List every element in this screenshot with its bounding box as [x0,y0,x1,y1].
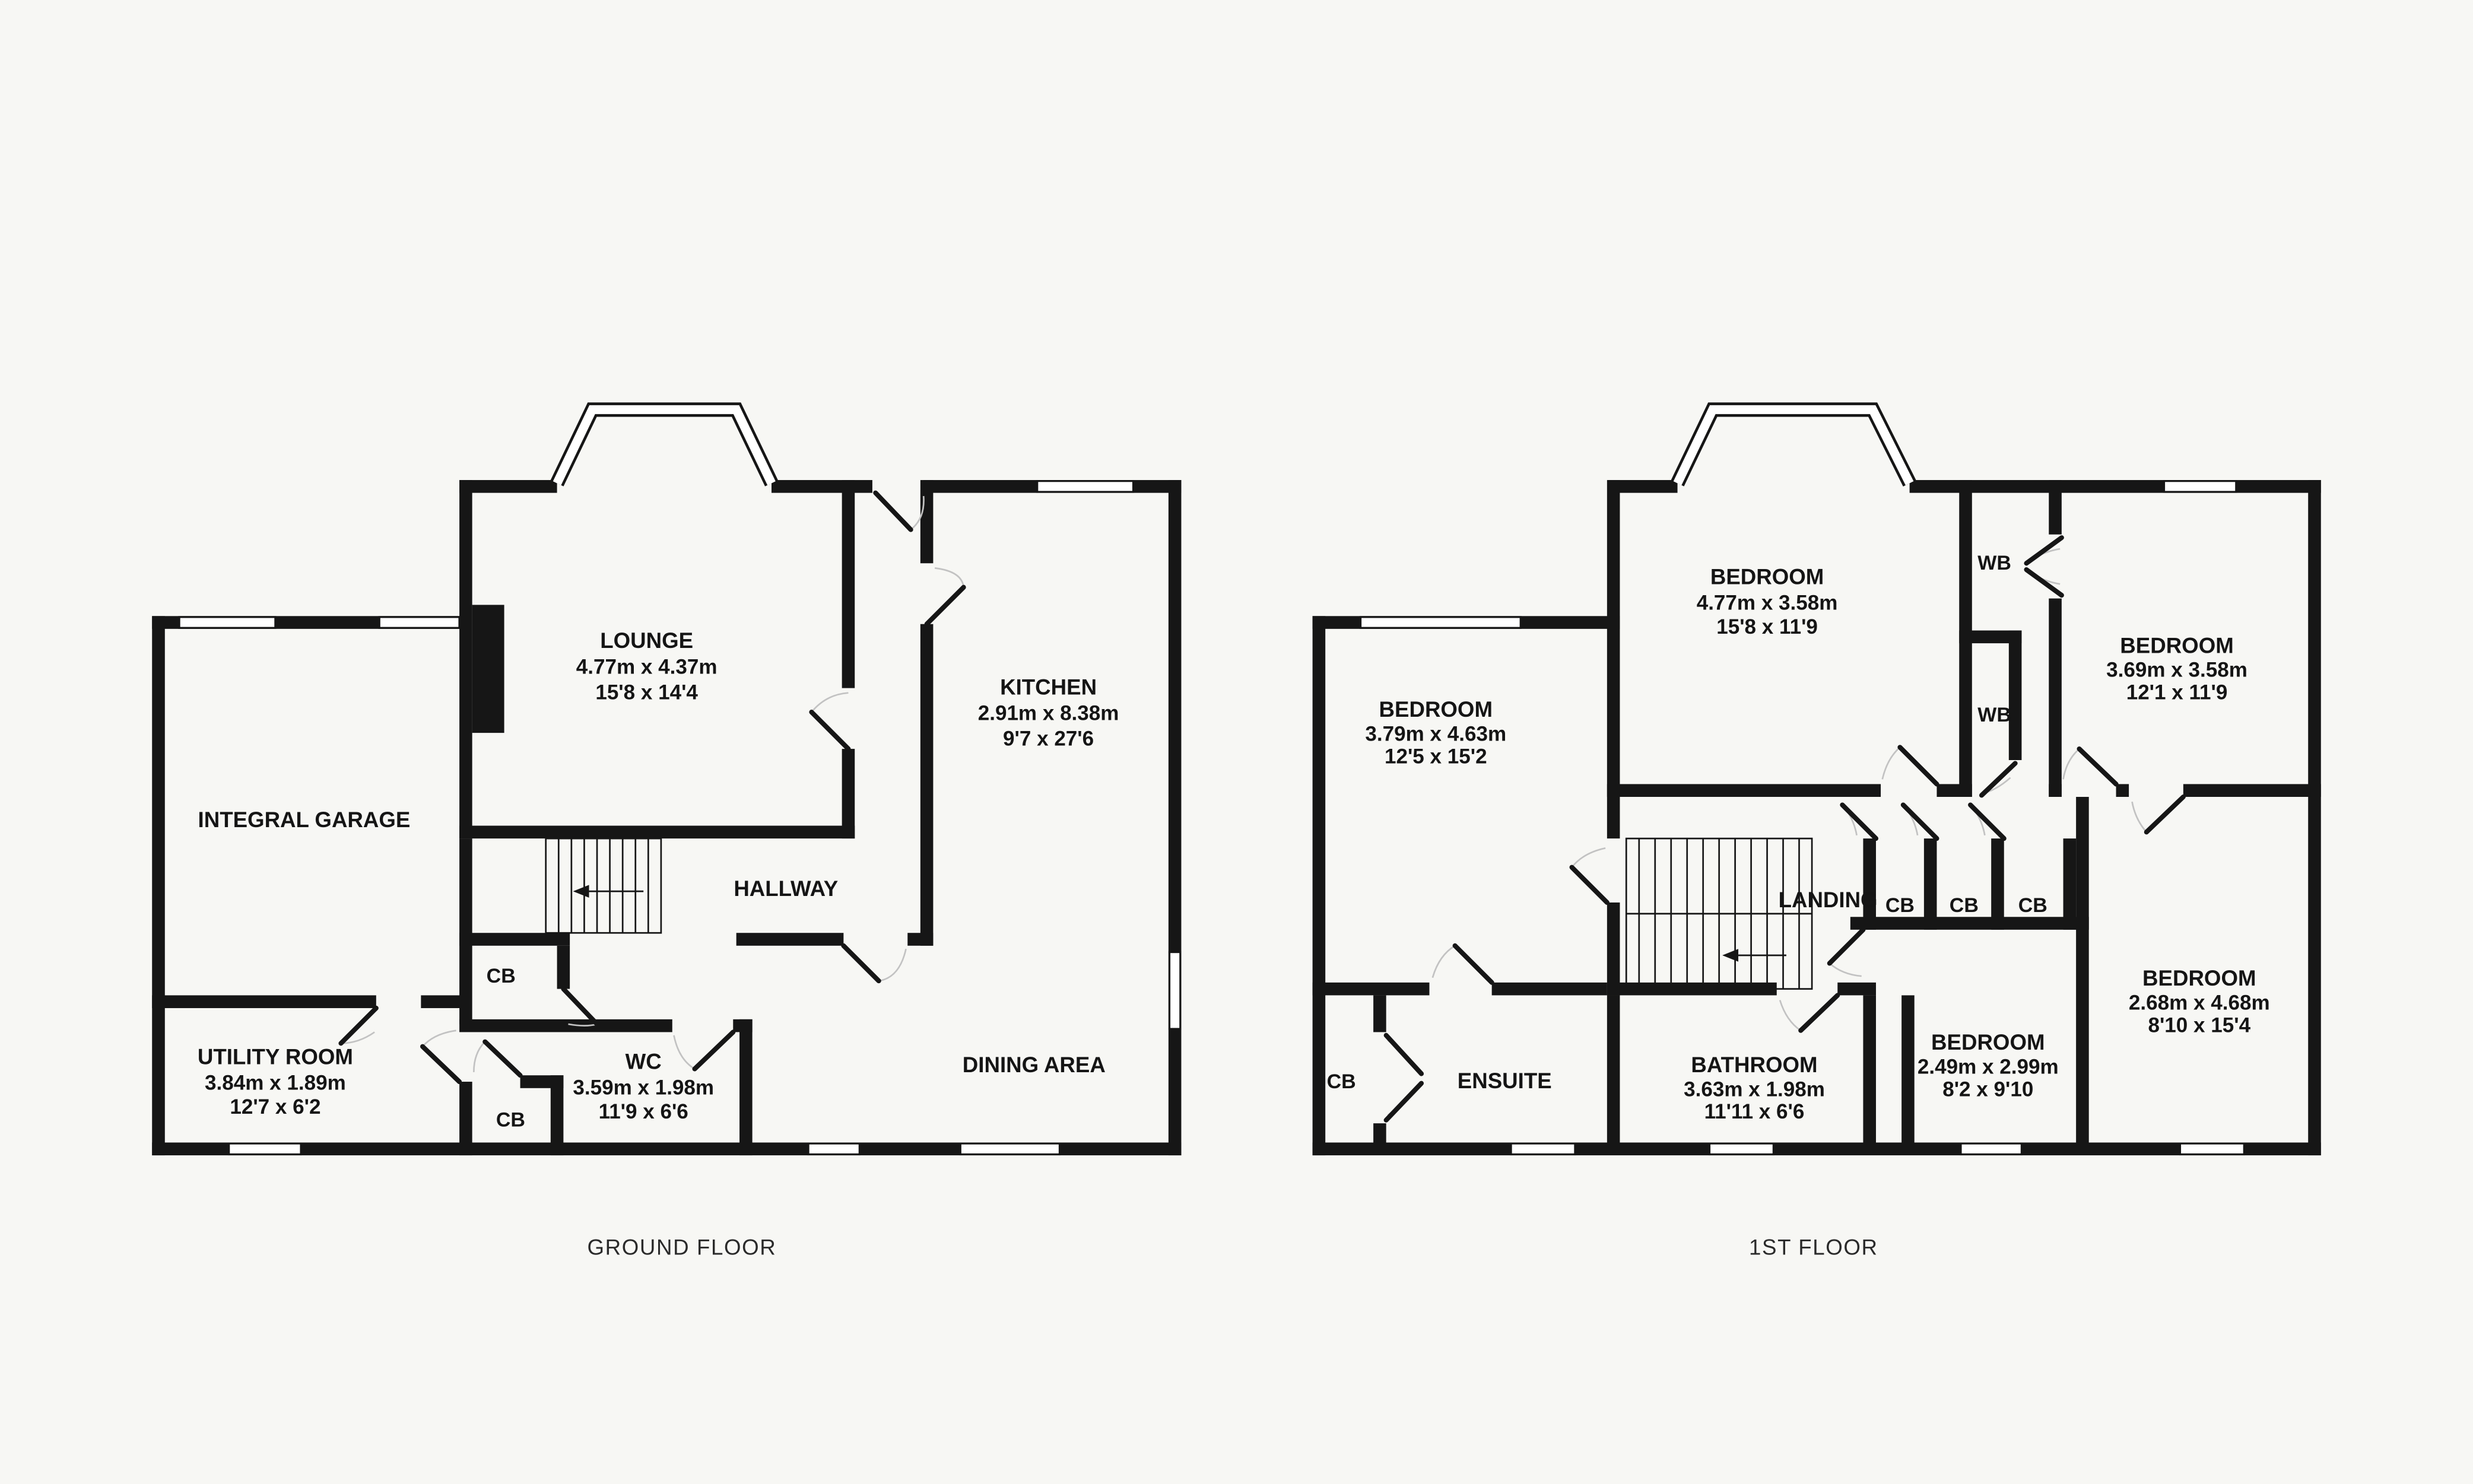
first-floor-caption: 1ST FLOOR [1749,1235,1878,1259]
bedroom-right-bottom-imperial: 8'10 x 15'4 [2148,1013,2250,1037]
bedroom-center-imperial: 15'8 x 11'9 [1716,615,1818,638]
cb-3-label: CB [2018,894,2047,917]
bedroom-center-metric: 4.77m x 3.58m [1697,591,1838,614]
bathroom-metric: 3.63m x 1.98m [1684,1078,1825,1101]
landing-label: LANDING [1779,888,1878,912]
utility-room-metric: 3.84m x 1.89m [205,1072,346,1095]
dining-area-label: DINING AREA [963,1053,1106,1077]
wb-mid-label: WB [1977,704,2011,726]
bedroom-mid-bottom-imperial: 8'2 x 9'10 [1942,1078,2033,1101]
bathroom-label: BATHROOM [1691,1053,1817,1077]
wc-label: WC [626,1049,662,1073]
kitchen-metric: 2.91m x 8.38m [978,702,1119,725]
bathroom-imperial: 11'11 x 6'6 [1704,1100,1805,1123]
bedroom-left-label: BEDROOM [1379,697,1493,722]
bedroom-right-top-label: BEDROOM [2120,633,2233,657]
bedroom-right-bottom-metric: 2.68m x 4.68m [2129,992,2270,1015]
wb-top-label: WB [1977,552,2011,574]
cb-1-label: CB [1885,894,1915,917]
utility-room-imperial: 12'7 x 6'2 [230,1095,320,1118]
floorplan-page: LOUNGE 4.77m x 4.37m 15'8 x 14'4 KITCHEN… [0,0,2473,1484]
integral-garage-label: INTEGRAL GARAGE [198,808,411,832]
hallway-label: HALLWAY [734,876,838,901]
background [0,0,2473,1484]
bedroom-mid-bottom-metric: 2.49m x 2.99m [1918,1056,2059,1079]
lounge-imperial: 15'8 x 14'4 [595,681,698,704]
bedroom-left-metric: 3.79m x 4.63m [1365,723,1506,746]
bedroom-right-bottom-label: BEDROOM [2142,966,2256,990]
ground-floor-caption: GROUND FLOOR [588,1235,777,1259]
bedroom-right-top-metric: 3.69m x 3.58m [2106,659,2247,682]
bedroom-center-label: BEDROOM [1710,564,1824,589]
kitchen-imperial: 9'7 x 27'6 [1003,727,1094,751]
lounge-label: LOUNGE [600,628,693,653]
kitchen-label: KITCHEN [1000,675,1097,699]
ensuite-label: ENSUITE [1458,1069,1552,1093]
cb-upper-label: CB [487,965,516,987]
bedroom-left-imperial: 12'5 x 15'2 [1385,745,1487,768]
bedroom-right-top-imperial: 12'1 x 11'9 [2126,681,2228,704]
utility-room-label: UTILITY ROOM [198,1044,353,1069]
cb-lower-label: CB [496,1109,525,1132]
floorplan-canvas: LOUNGE 4.77m x 4.37m 15'8 x 14'4 KITCHEN… [0,0,2473,1484]
cb-2-label: CB [1950,894,1979,917]
wc-metric: 3.59m x 1.98m [573,1076,714,1100]
wc-imperial: 11'9 x 6'6 [599,1100,688,1123]
cb-ensuite-label: CB [1327,1070,1356,1093]
bedroom-mid-bottom-label: BEDROOM [1931,1030,2045,1054]
lounge-metric: 4.77m x 4.37m [576,655,718,678]
